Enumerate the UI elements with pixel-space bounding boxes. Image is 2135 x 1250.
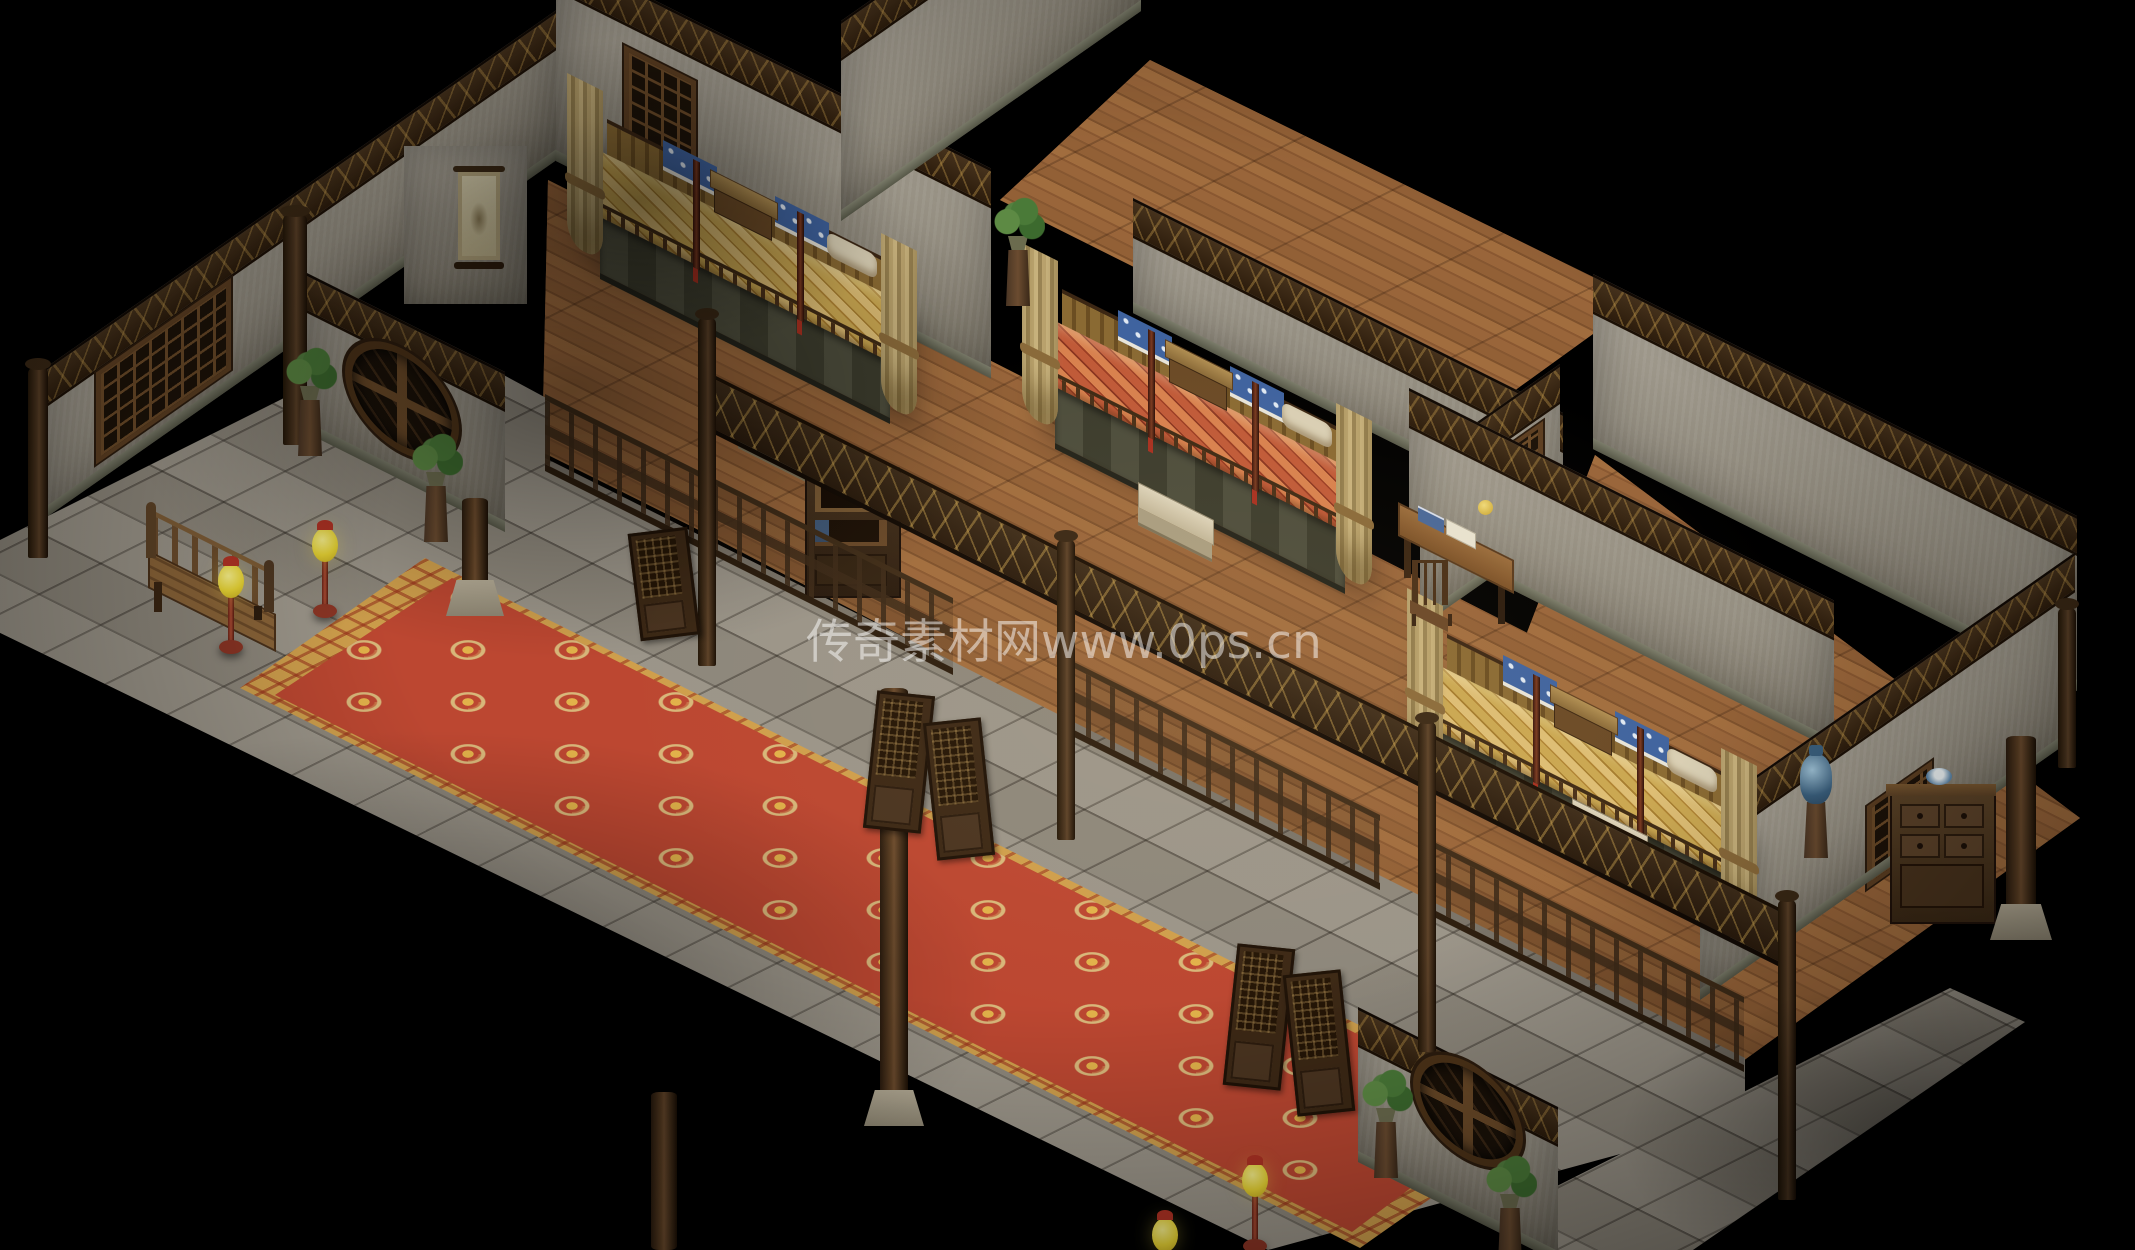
floor-lamp-1-detail xyxy=(219,640,243,654)
potted-plant-2-detail xyxy=(424,486,448,542)
potted-plant-4-detail xyxy=(1374,1122,1398,1178)
swing-door-room3-right-detail xyxy=(1290,977,1338,1060)
porcelain-vase-stand-detail xyxy=(1800,754,1832,804)
swing-door-room2-right-detail xyxy=(931,725,979,805)
sideboard-room3-detail xyxy=(1944,834,1984,858)
floor-lamp-2-detail xyxy=(312,528,338,562)
sideboard-room3-detail xyxy=(1886,784,1996,796)
wooden-daybed-bench xyxy=(146,502,281,620)
desk-chair xyxy=(1410,560,1454,626)
swing-door-room3-left-detail xyxy=(1230,1040,1274,1082)
floor-lamp-3-detail xyxy=(1243,1239,1267,1250)
canopy-bed-room1-detail xyxy=(693,159,700,271)
canopy-bed-room1-detail xyxy=(567,73,603,261)
sideboard-room3-detail xyxy=(1900,864,1984,908)
scroll-painting xyxy=(456,166,502,272)
potted-plant-3-detail xyxy=(991,194,1045,240)
sideboard-room3-detail xyxy=(1900,834,1940,858)
sideboard-room3-detail xyxy=(1944,804,1984,828)
porcelain-vase-stand-detail xyxy=(1804,802,1828,858)
potted-plant-2-detail xyxy=(409,430,463,476)
post-corridor-2 xyxy=(1057,540,1075,840)
floor-lamp-2-detail xyxy=(317,520,333,530)
post-corridor-3 xyxy=(1418,722,1436,1052)
post-wall-west-end xyxy=(28,368,48,558)
floor-lamp-4[interactable] xyxy=(1150,1210,1180,1250)
floor-lamp-1-detail xyxy=(218,564,244,598)
floor-lamp-4-detail xyxy=(1152,1218,1178,1250)
floor-lamp-3-detail xyxy=(1242,1163,1268,1197)
swing-door-room2-left-detail xyxy=(876,698,924,778)
potted-plant-5 xyxy=(1490,1158,1530,1250)
potted-plant-3 xyxy=(998,200,1038,310)
canopy-bed-room2-detail xyxy=(1336,403,1372,591)
wooden-daybed-bench-detail xyxy=(154,582,162,612)
potted-plant-3-detail xyxy=(1006,250,1030,306)
sideboard-room3-detail xyxy=(1900,804,1940,828)
swing-door-room3-left-detail xyxy=(1236,951,1284,1034)
sideboard-room3 xyxy=(1890,788,1996,924)
scroll-painting-detail xyxy=(454,262,504,269)
swing-door-room2-right-detail xyxy=(940,812,984,853)
potted-plant-1 xyxy=(290,350,330,460)
canopy-bed-room3-detail xyxy=(1533,674,1540,786)
potted-plant-1-detail xyxy=(298,400,322,456)
floor-lamp-3-detail xyxy=(1247,1155,1263,1165)
porcelain-vase-stand xyxy=(1796,744,1836,860)
column-corridor-3 xyxy=(651,1092,677,1250)
post-corridor-4 xyxy=(1778,900,1796,1200)
column-corridor-1 xyxy=(462,498,488,610)
potted-plant-5-detail xyxy=(1483,1152,1537,1198)
potted-plant-1-detail xyxy=(283,344,337,390)
canopy-bed-room1-detail xyxy=(797,211,804,323)
potted-plant-4 xyxy=(1366,1072,1406,1182)
potted-plant-5-detail xyxy=(1498,1208,1522,1250)
floor-lamp-2[interactable] xyxy=(310,520,340,620)
game-scene[interactable]: 传奇素材网www.0ps.cn xyxy=(0,0,2135,1250)
floor-lamp-1-detail xyxy=(223,556,239,566)
floor-lamp-3-detail xyxy=(1252,1195,1258,1243)
canopy-bed-room2-detail xyxy=(1252,381,1259,493)
post-corridor-1 xyxy=(698,318,716,666)
wooden-daybed-bench-detail xyxy=(254,606,262,620)
wooden-daybed-bench-detail xyxy=(146,502,156,558)
canopy-bed-room2-detail xyxy=(1148,329,1155,441)
scroll-painting-detail xyxy=(458,172,500,260)
canopy-bed-room1 xyxy=(545,85,945,425)
bed-step-room2 xyxy=(1138,482,1218,528)
sideboard-room3-detail xyxy=(1926,768,1952,785)
writing-desk-detail xyxy=(1498,584,1505,624)
desk-chair-detail xyxy=(1412,614,1452,626)
swing-door-room1-detail xyxy=(643,600,686,633)
canopy-bed-room1-detail xyxy=(881,233,917,421)
floor-lamp-1-detail xyxy=(228,596,234,644)
desk-chair-detail xyxy=(1412,560,1448,605)
wooden-daybed-bench-detail xyxy=(264,560,274,612)
floor-lamp-2-detail xyxy=(322,560,328,608)
floor-lamp-1[interactable] xyxy=(216,556,246,664)
floor-lamp-4-detail xyxy=(1157,1210,1173,1220)
swing-door-room1-detail xyxy=(635,535,682,599)
swing-door-room2-left-detail xyxy=(871,785,915,826)
floor-lamp-2-detail xyxy=(313,604,337,618)
post-room3-corner xyxy=(2058,608,2076,768)
swing-door-room3-right-detail xyxy=(1300,1067,1344,1109)
writing-desk-detail xyxy=(1478,500,1493,515)
column-room3-east xyxy=(2006,736,2036,934)
potted-plant-2 xyxy=(416,436,456,546)
potted-plant-4-detail xyxy=(1359,1066,1413,1112)
floor-lamp-3[interactable] xyxy=(1240,1155,1270,1250)
